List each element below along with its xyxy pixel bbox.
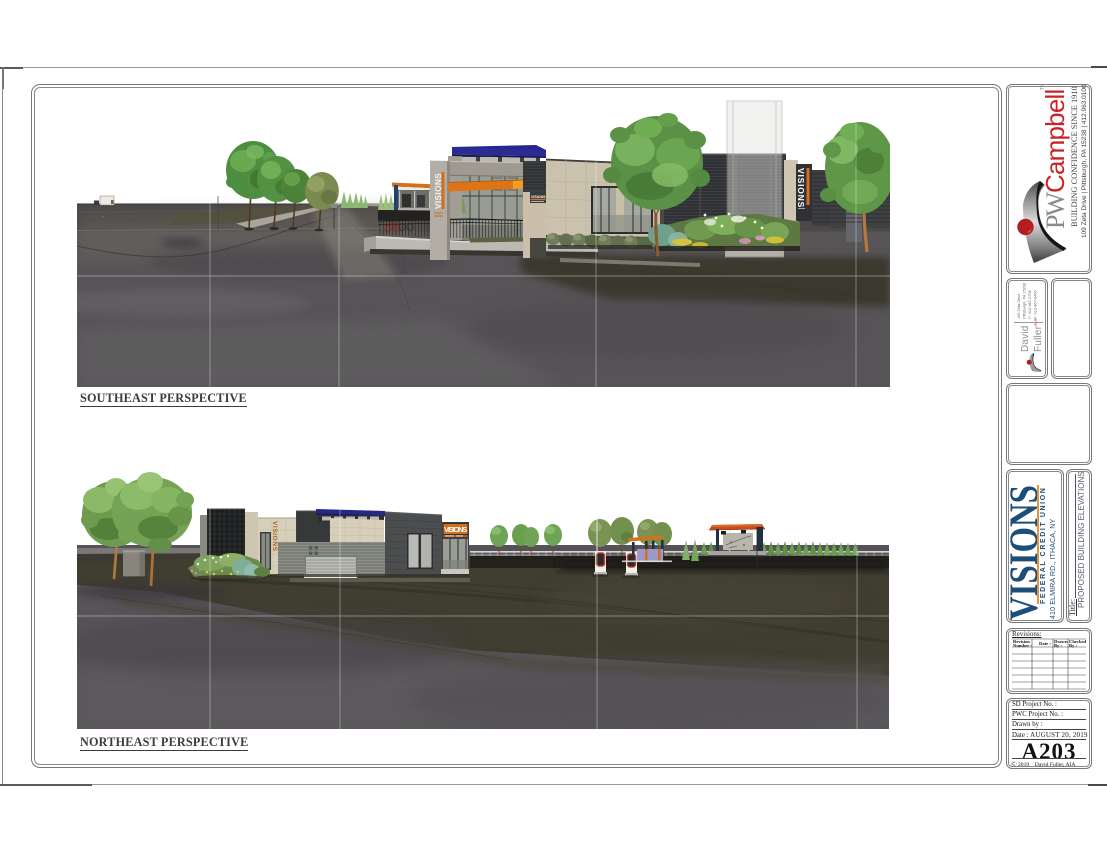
- svg-text:VISIONS: VISIONS: [271, 521, 278, 552]
- svg-text:VISIONS: VISIONS: [531, 195, 546, 199]
- svg-text:Date :: Date :: [1039, 641, 1051, 646]
- svg-text:VISIONS: VISIONS: [444, 525, 467, 534]
- svg-text:By :: By :: [1069, 643, 1078, 648]
- svg-text:By :: By :: [1054, 643, 1063, 648]
- svg-text:VISIONS: VISIONS: [796, 168, 806, 208]
- svg-text:Number :: Number :: [1013, 643, 1032, 648]
